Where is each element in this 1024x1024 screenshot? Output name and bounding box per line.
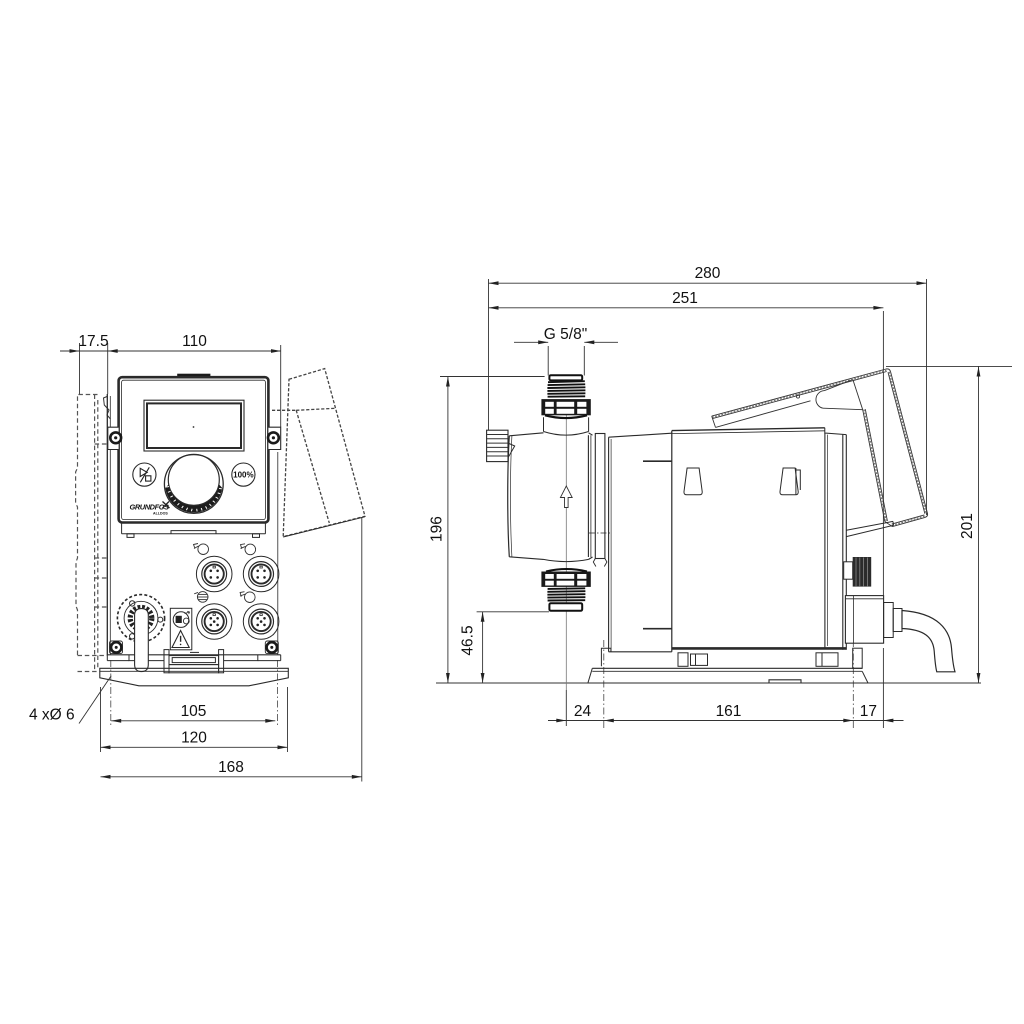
- svg-text:280: 280: [695, 265, 721, 282]
- svg-text:100%: 100%: [233, 471, 253, 480]
- svg-text:161: 161: [716, 703, 742, 720]
- svg-text:G 5/8": G 5/8": [544, 326, 587, 343]
- svg-text:4 xØ 6: 4 xØ 6: [29, 707, 75, 724]
- svg-text:168: 168: [218, 759, 244, 776]
- svg-text:105: 105: [181, 703, 207, 720]
- svg-text:17.5: 17.5: [78, 333, 108, 350]
- svg-text:46.5: 46.5: [460, 625, 477, 655]
- svg-text:196: 196: [429, 516, 446, 542]
- svg-text:ALLDOS: ALLDOS: [153, 512, 168, 516]
- svg-text:17: 17: [860, 703, 877, 720]
- svg-text:201: 201: [959, 513, 976, 539]
- svg-text:110: 110: [182, 333, 207, 350]
- svg-text:120: 120: [181, 730, 207, 747]
- svg-text:251: 251: [672, 290, 698, 307]
- svg-text:24: 24: [574, 703, 592, 720]
